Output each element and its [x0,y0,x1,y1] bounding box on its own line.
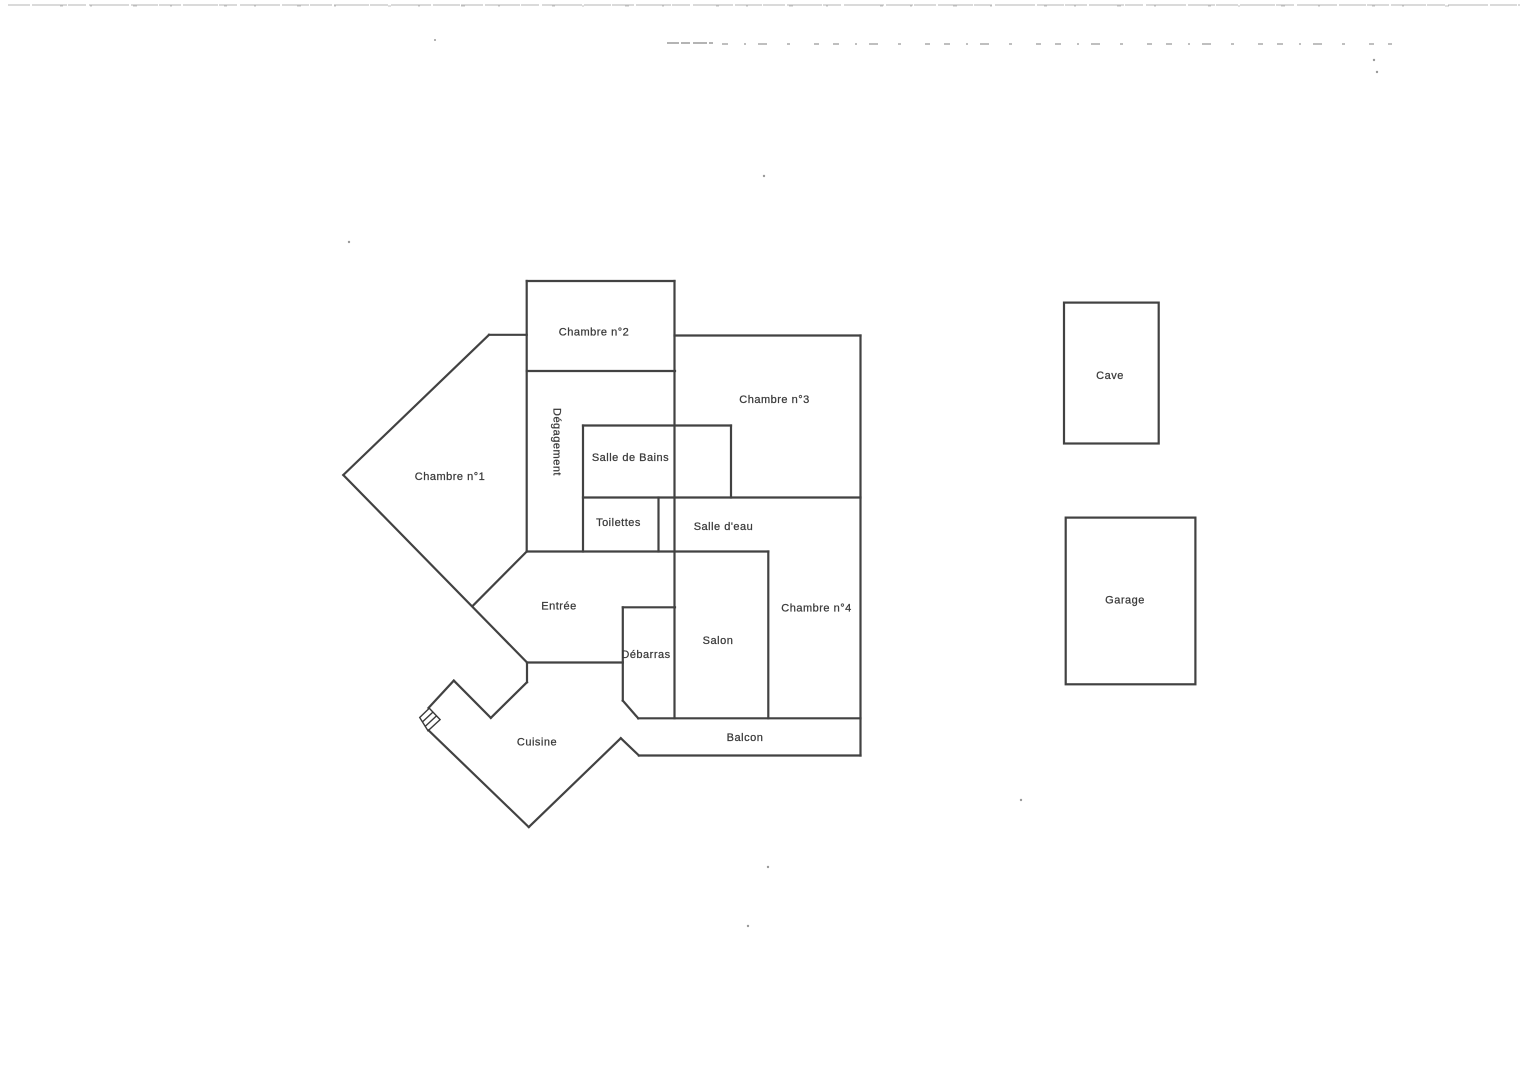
svg-text:Salon: Salon [703,635,734,647]
svg-text:Chambre n°4: Chambre n°4 [781,603,851,615]
svg-text:Cave: Cave [1096,370,1124,382]
svg-text:Garage: Garage [1105,595,1145,607]
svg-text:Chambre n°3: Chambre n°3 [739,394,809,406]
svg-text:Débarras: Débarras [621,649,670,661]
svg-text:Balcon: Balcon [727,732,764,744]
svg-text:Dégagement: Dégagement [551,408,563,476]
svg-text:Chambre n°1: Chambre n°1 [415,471,485,483]
svg-text:Cuisine: Cuisine [517,737,557,749]
svg-text:Chambre n°2: Chambre n°2 [559,327,629,339]
svg-text:Salle de Bains: Salle de Bains [592,452,669,464]
svg-text:Salle d'eau: Salle d'eau [694,521,754,533]
svg-text:Toilettes: Toilettes [596,517,641,529]
svg-text:Entrée: Entrée [541,601,576,613]
